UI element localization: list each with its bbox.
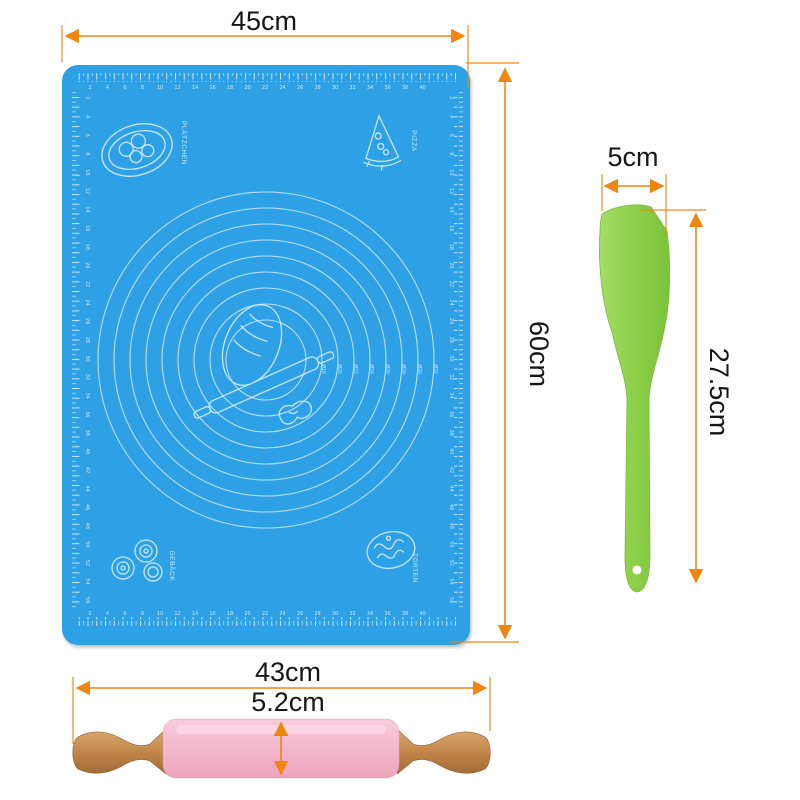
ruler-number: 24 <box>279 611 285 617</box>
ruler-top <box>76 73 458 82</box>
ruler-number: 4 <box>106 85 109 91</box>
ruler-number: 18 <box>227 611 233 617</box>
measuring-circle-label: Ø20 <box>336 364 342 374</box>
product-dimensions-image: 246810121416182022242628303234363840 246… <box>0 0 800 800</box>
measuring-circle-label: Ø30 <box>416 364 422 374</box>
mat-label-cookies: PLÄTZCHEN <box>180 121 188 165</box>
ruler-number: 12 <box>174 611 180 617</box>
ruler-number: 36 <box>384 85 390 91</box>
ruler-number: 16 <box>209 85 215 91</box>
ruler-number: 26 <box>448 318 454 324</box>
ruler-number: 12 <box>84 188 90 194</box>
ruler-number: 26 <box>297 85 303 91</box>
measuring-circle-label: Ø32 <box>432 364 438 374</box>
ruler-number: 14 <box>448 206 454 212</box>
ruler-number: 10 <box>448 169 454 175</box>
ruler-number: 32 <box>349 611 355 617</box>
ruler-number: 42 <box>84 467 90 473</box>
ruler-number: 28 <box>448 337 454 343</box>
ruler-number: 14 <box>192 85 198 91</box>
ruler-number: 6 <box>84 134 90 137</box>
ruler-number: 56 <box>448 597 454 603</box>
ruler-number: 16 <box>448 225 454 231</box>
baking-mat: 246810121416182022242628303234363840 246… <box>62 65 470 645</box>
spatula-width-label: 5cm <box>607 142 658 172</box>
spatula-length-label: 27.5cm <box>704 348 734 437</box>
ruler-number: 32 <box>349 85 355 91</box>
ruler-number: 18 <box>448 244 454 250</box>
ruler-number: 26 <box>297 611 303 617</box>
ruler-number: 56 <box>84 597 90 603</box>
ruler-left <box>71 90 80 610</box>
ruler-number: 30 <box>332 611 338 617</box>
ruler-number: 6 <box>123 85 126 91</box>
ruler-number: 26 <box>84 318 90 324</box>
ruler-number: 40 <box>419 85 425 91</box>
ruler-number: 2 <box>448 96 454 99</box>
mat-label-pizza: PIZZA <box>410 130 417 151</box>
ruler-bottom <box>76 617 458 626</box>
spatula-hanging-hole <box>633 566 642 575</box>
ruler-number: 52 <box>448 560 454 566</box>
ruler-number: 44 <box>448 485 454 491</box>
ruler-number: 22 <box>262 611 268 617</box>
ruler-number: 30 <box>332 85 338 91</box>
ruler-number: 38 <box>402 611 408 617</box>
ruler-number: 20 <box>244 611 250 617</box>
ruler-number: 10 <box>157 611 163 617</box>
ruler-number: 4 <box>84 115 90 118</box>
ruler-number: 34 <box>367 85 373 91</box>
ruler-number: 40 <box>448 448 454 454</box>
ruler-number: 18 <box>84 244 90 250</box>
ruler-number: 40 <box>84 448 90 454</box>
ruler-number: 20 <box>244 85 250 91</box>
ruler-number: 24 <box>84 299 90 305</box>
ruler-number: 36 <box>448 411 454 417</box>
ruler-number: 46 <box>448 504 454 510</box>
ruler-number: 2 <box>84 96 90 99</box>
ruler-number: 50 <box>84 541 90 547</box>
rolling-pin-handle-left <box>73 729 166 774</box>
ruler-number: 34 <box>448 392 454 398</box>
measuring-circle-label: Ø18 <box>320 364 326 374</box>
ruler-number: 44 <box>84 485 90 491</box>
ruler-number: 40 <box>419 611 425 617</box>
ruler-number: 16 <box>84 225 90 231</box>
ruler-number: 32 <box>448 374 454 380</box>
ruler-number: 14 <box>192 611 198 617</box>
mat-width-label: 45cm <box>231 6 297 36</box>
ruler-number: 8 <box>448 152 454 155</box>
ruler-number: 36 <box>384 611 390 617</box>
ruler-right <box>454 90 463 610</box>
ruler-number: 50 <box>448 541 454 547</box>
ruler-number: 24 <box>448 299 454 305</box>
ruler-number: 6 <box>448 134 454 137</box>
ruler-number: 28 <box>84 337 90 343</box>
ruler-number: 28 <box>314 85 320 91</box>
ruler-number: 16 <box>209 611 215 617</box>
ruler-number: 34 <box>367 611 373 617</box>
measuring-circle-label: Ø28 <box>400 364 406 374</box>
ruler-number: 6 <box>123 611 126 617</box>
measuring-circle-label: Ø24 <box>368 364 374 374</box>
spatula-body <box>599 205 669 592</box>
pin-diameter-label: 5.2cm <box>251 687 325 717</box>
ruler-number: 8 <box>84 152 90 155</box>
ruler-number: 2 <box>88 85 91 91</box>
ruler-number: 12 <box>448 188 454 194</box>
ruler-number: 10 <box>157 85 163 91</box>
ruler-number: 48 <box>84 523 90 529</box>
ruler-number: 48 <box>448 523 454 529</box>
ruler-number: 36 <box>84 411 90 417</box>
ruler-number: 12 <box>174 85 180 91</box>
ruler-number: 28 <box>314 611 320 617</box>
spatula <box>599 205 669 592</box>
measuring-circle-label: Ø26 <box>384 364 390 374</box>
measuring-circle-label: Ø22 <box>352 364 358 374</box>
ruler-number: 24 <box>279 85 285 91</box>
ruler-number: 20 <box>448 262 454 268</box>
rolling-pin-handle-right <box>397 729 490 774</box>
ruler-number: 46 <box>84 504 90 510</box>
ruler-number: 34 <box>84 392 90 398</box>
baking-mat-surface <box>62 65 470 645</box>
ruler-number: 38 <box>402 85 408 91</box>
ruler-number: 2 <box>88 611 91 617</box>
ruler-number: 10 <box>84 169 90 175</box>
ruler-number: 4 <box>106 611 109 617</box>
ruler-number: 8 <box>141 85 144 91</box>
ruler-number: 54 <box>84 578 90 584</box>
ruler-number: 30 <box>448 355 454 361</box>
ruler-number: 32 <box>84 374 90 380</box>
ruler-number: 38 <box>448 430 454 436</box>
ruler-number: 18 <box>227 85 233 91</box>
mat-label-pastry: GEBÄCK <box>168 551 176 582</box>
ruler-number: 52 <box>84 560 90 566</box>
pin-length-label: 43cm <box>255 657 321 687</box>
ruler-number: 42 <box>448 467 454 473</box>
ruler-number: 14 <box>84 206 90 212</box>
ruler-number: 4 <box>448 115 454 118</box>
ruler-number: 22 <box>448 281 454 287</box>
ruler-number: 22 <box>262 85 268 91</box>
ruler-number: 20 <box>84 262 90 268</box>
mat-height-label: 60cm <box>524 321 554 387</box>
ruler-number: 30 <box>84 355 90 361</box>
ruler-number: 22 <box>84 281 90 287</box>
ruler-number: 38 <box>84 430 90 436</box>
mat-label-torte: TORTEN <box>411 553 418 583</box>
ruler-number: 54 <box>448 578 454 584</box>
ruler-number: 8 <box>141 611 144 617</box>
